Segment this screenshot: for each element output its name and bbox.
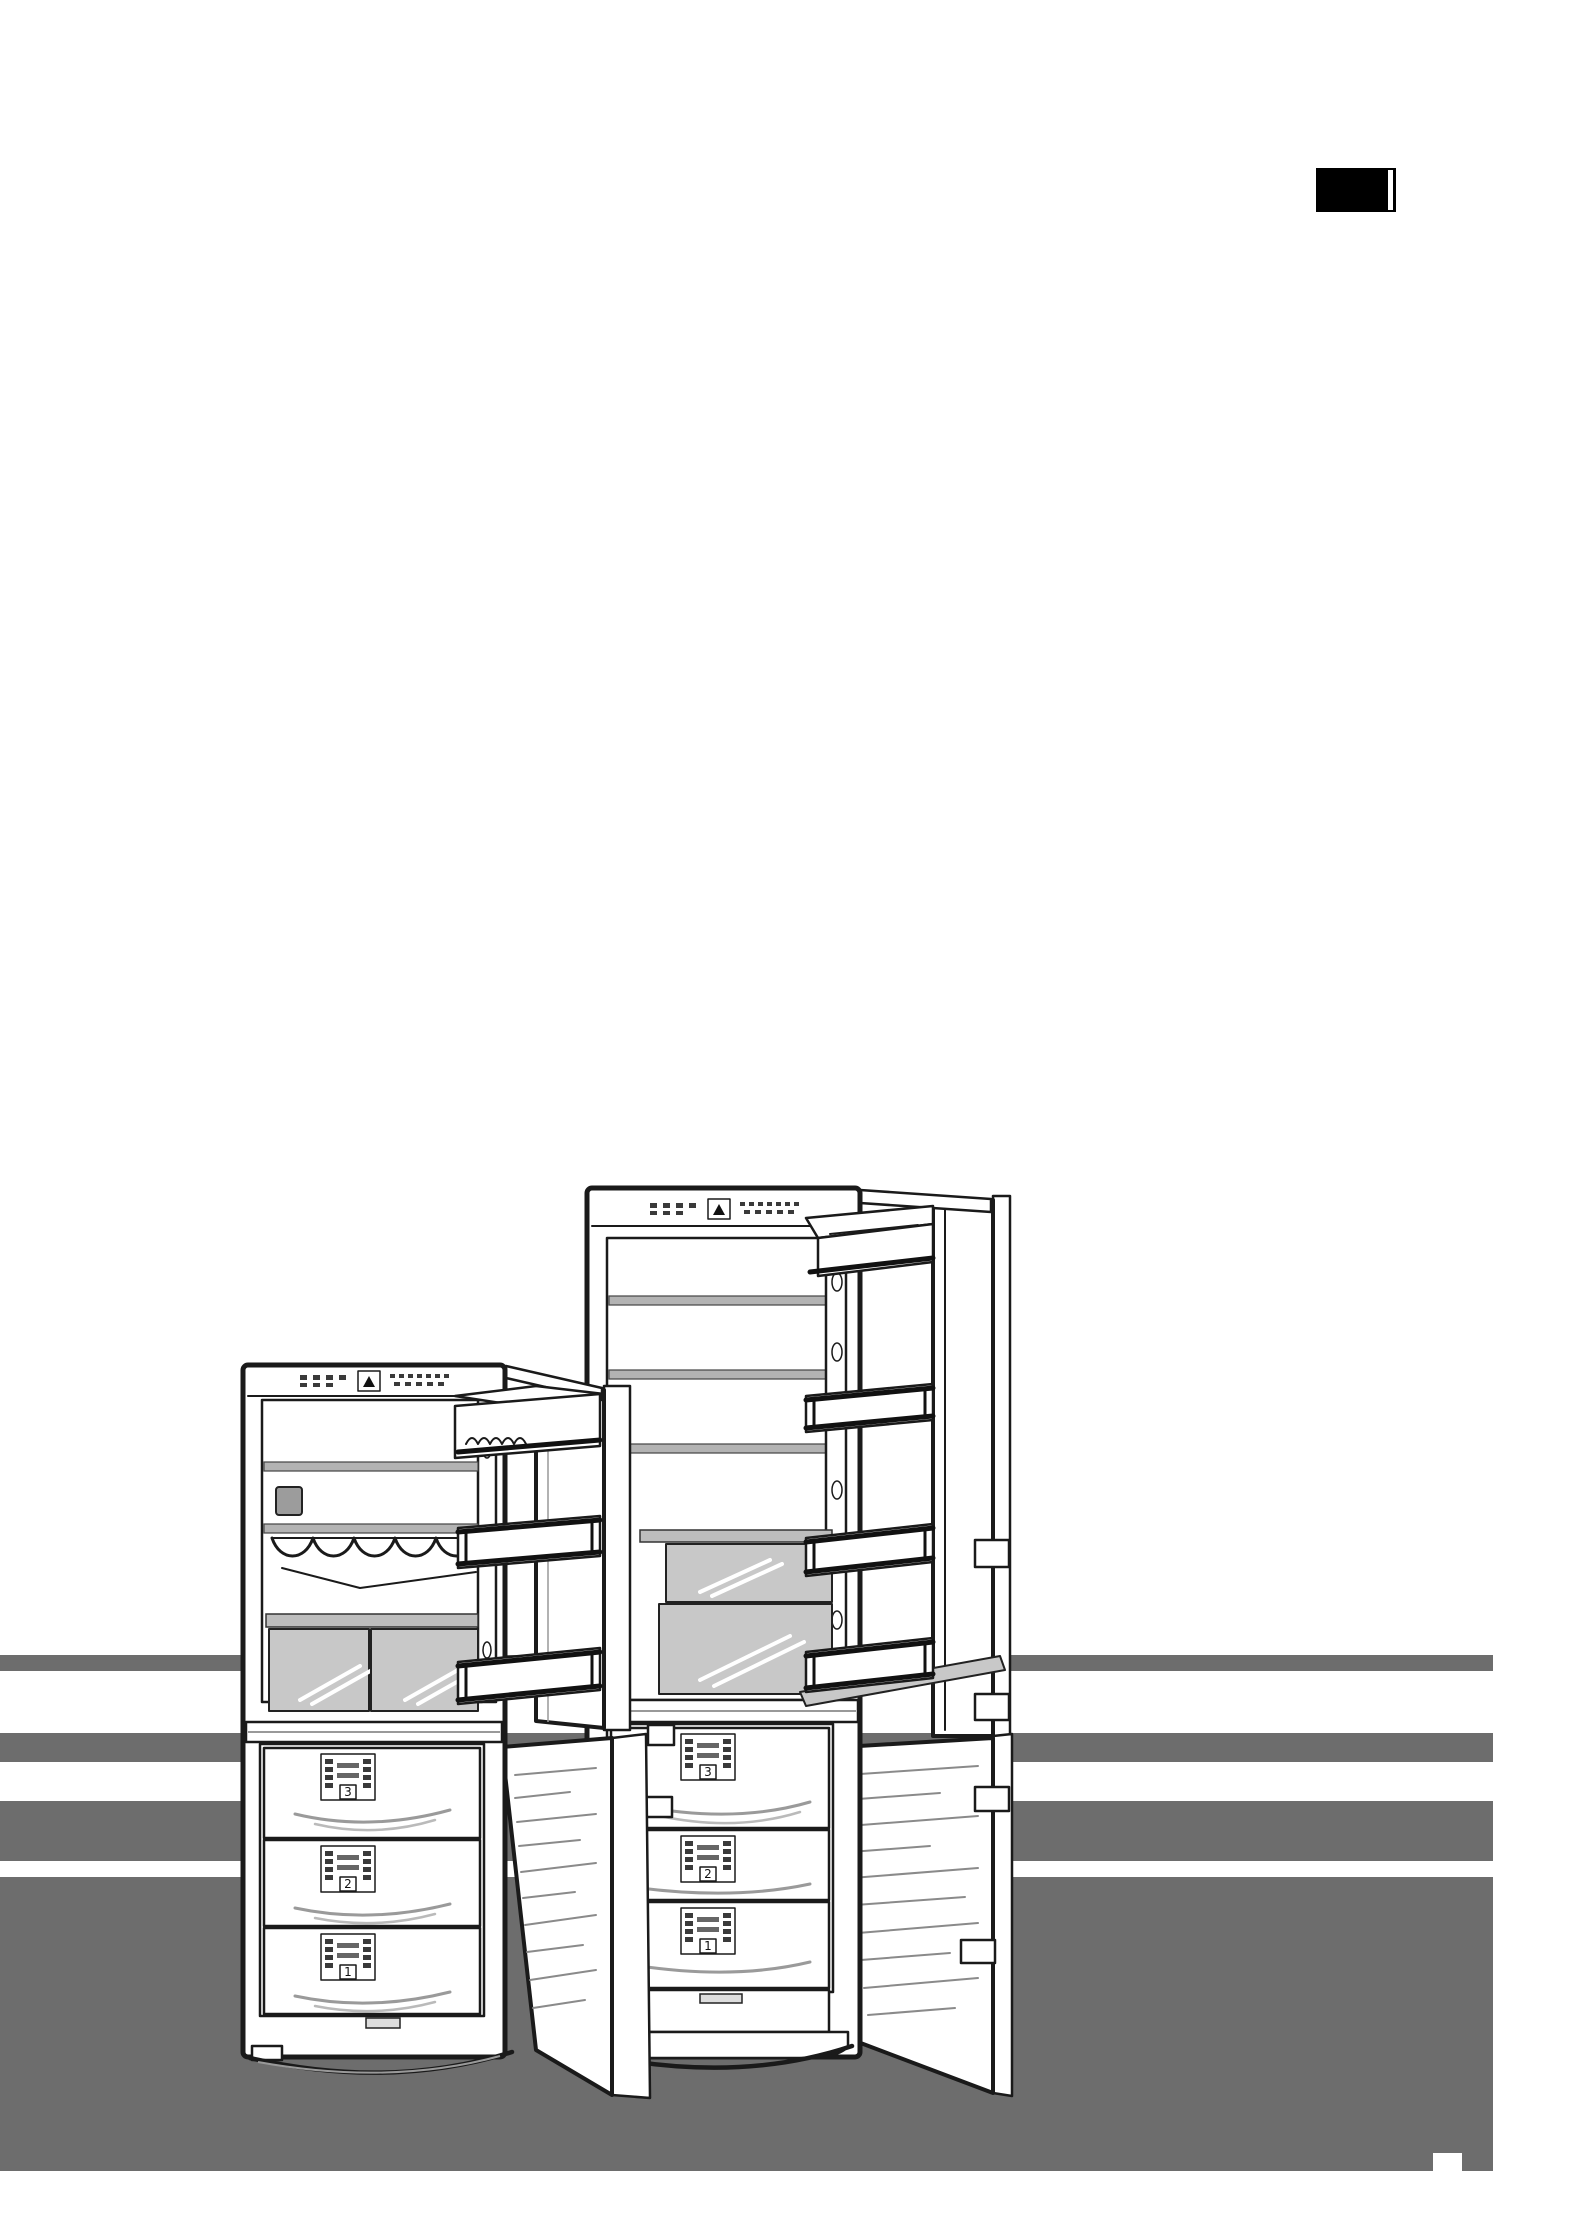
shelf-slot-icon bbox=[483, 1642, 491, 1658]
right-fridge-door-edge bbox=[993, 1196, 1010, 1736]
right-shelf-1 bbox=[609, 1296, 831, 1305]
hinge-bracket bbox=[975, 1787, 1009, 1811]
hinge-bracket bbox=[648, 1725, 674, 1745]
right-fridge bbox=[587, 1188, 1012, 2096]
right-shelf-3 bbox=[609, 1444, 831, 1453]
manual-page: 3 2 1 3 2 1 bbox=[0, 0, 1575, 2228]
left-drawer-2-number: 2 bbox=[344, 1877, 352, 1891]
right-drawer-2-number: 2 bbox=[704, 1867, 712, 1881]
floor-notch bbox=[1433, 2153, 1462, 2171]
left-freezer-door-edge bbox=[612, 1734, 650, 2098]
left-drawer-3-number: 3 bbox=[344, 1785, 352, 1799]
right-fridge-door bbox=[933, 1200, 993, 1736]
shelf-slot-icon bbox=[832, 1481, 842, 1499]
left-drawer-1-number: 1 bbox=[344, 1965, 352, 1979]
left-fridge-door-edge bbox=[604, 1386, 630, 1730]
right-shelf-2 bbox=[609, 1370, 831, 1379]
hinge-bracket bbox=[961, 1940, 995, 1963]
shelf-slot-icon bbox=[832, 1273, 842, 1291]
right-drawer-1-number: 1 bbox=[704, 1939, 712, 1953]
fridge-illustration: 3 2 1 3 2 1 bbox=[0, 0, 1575, 2228]
hinge-bracket bbox=[646, 1797, 672, 1817]
right-crisper-top bbox=[640, 1530, 832, 1542]
hinge-bracket bbox=[975, 1540, 1009, 1567]
shelf-slot-icon bbox=[832, 1611, 842, 1629]
base-handle bbox=[700, 1994, 742, 2003]
left-shelf-2 bbox=[264, 1524, 478, 1533]
shelf-slot-icon bbox=[832, 1343, 842, 1361]
left-wall-box bbox=[276, 1487, 302, 1515]
left-shelf-1 bbox=[264, 1462, 478, 1471]
hinge-bracket bbox=[975, 1694, 1009, 1720]
base-handle bbox=[366, 2018, 400, 2028]
left-crisper-top bbox=[266, 1614, 478, 1627]
right-drawer-3-number: 3 bbox=[704, 1765, 712, 1779]
